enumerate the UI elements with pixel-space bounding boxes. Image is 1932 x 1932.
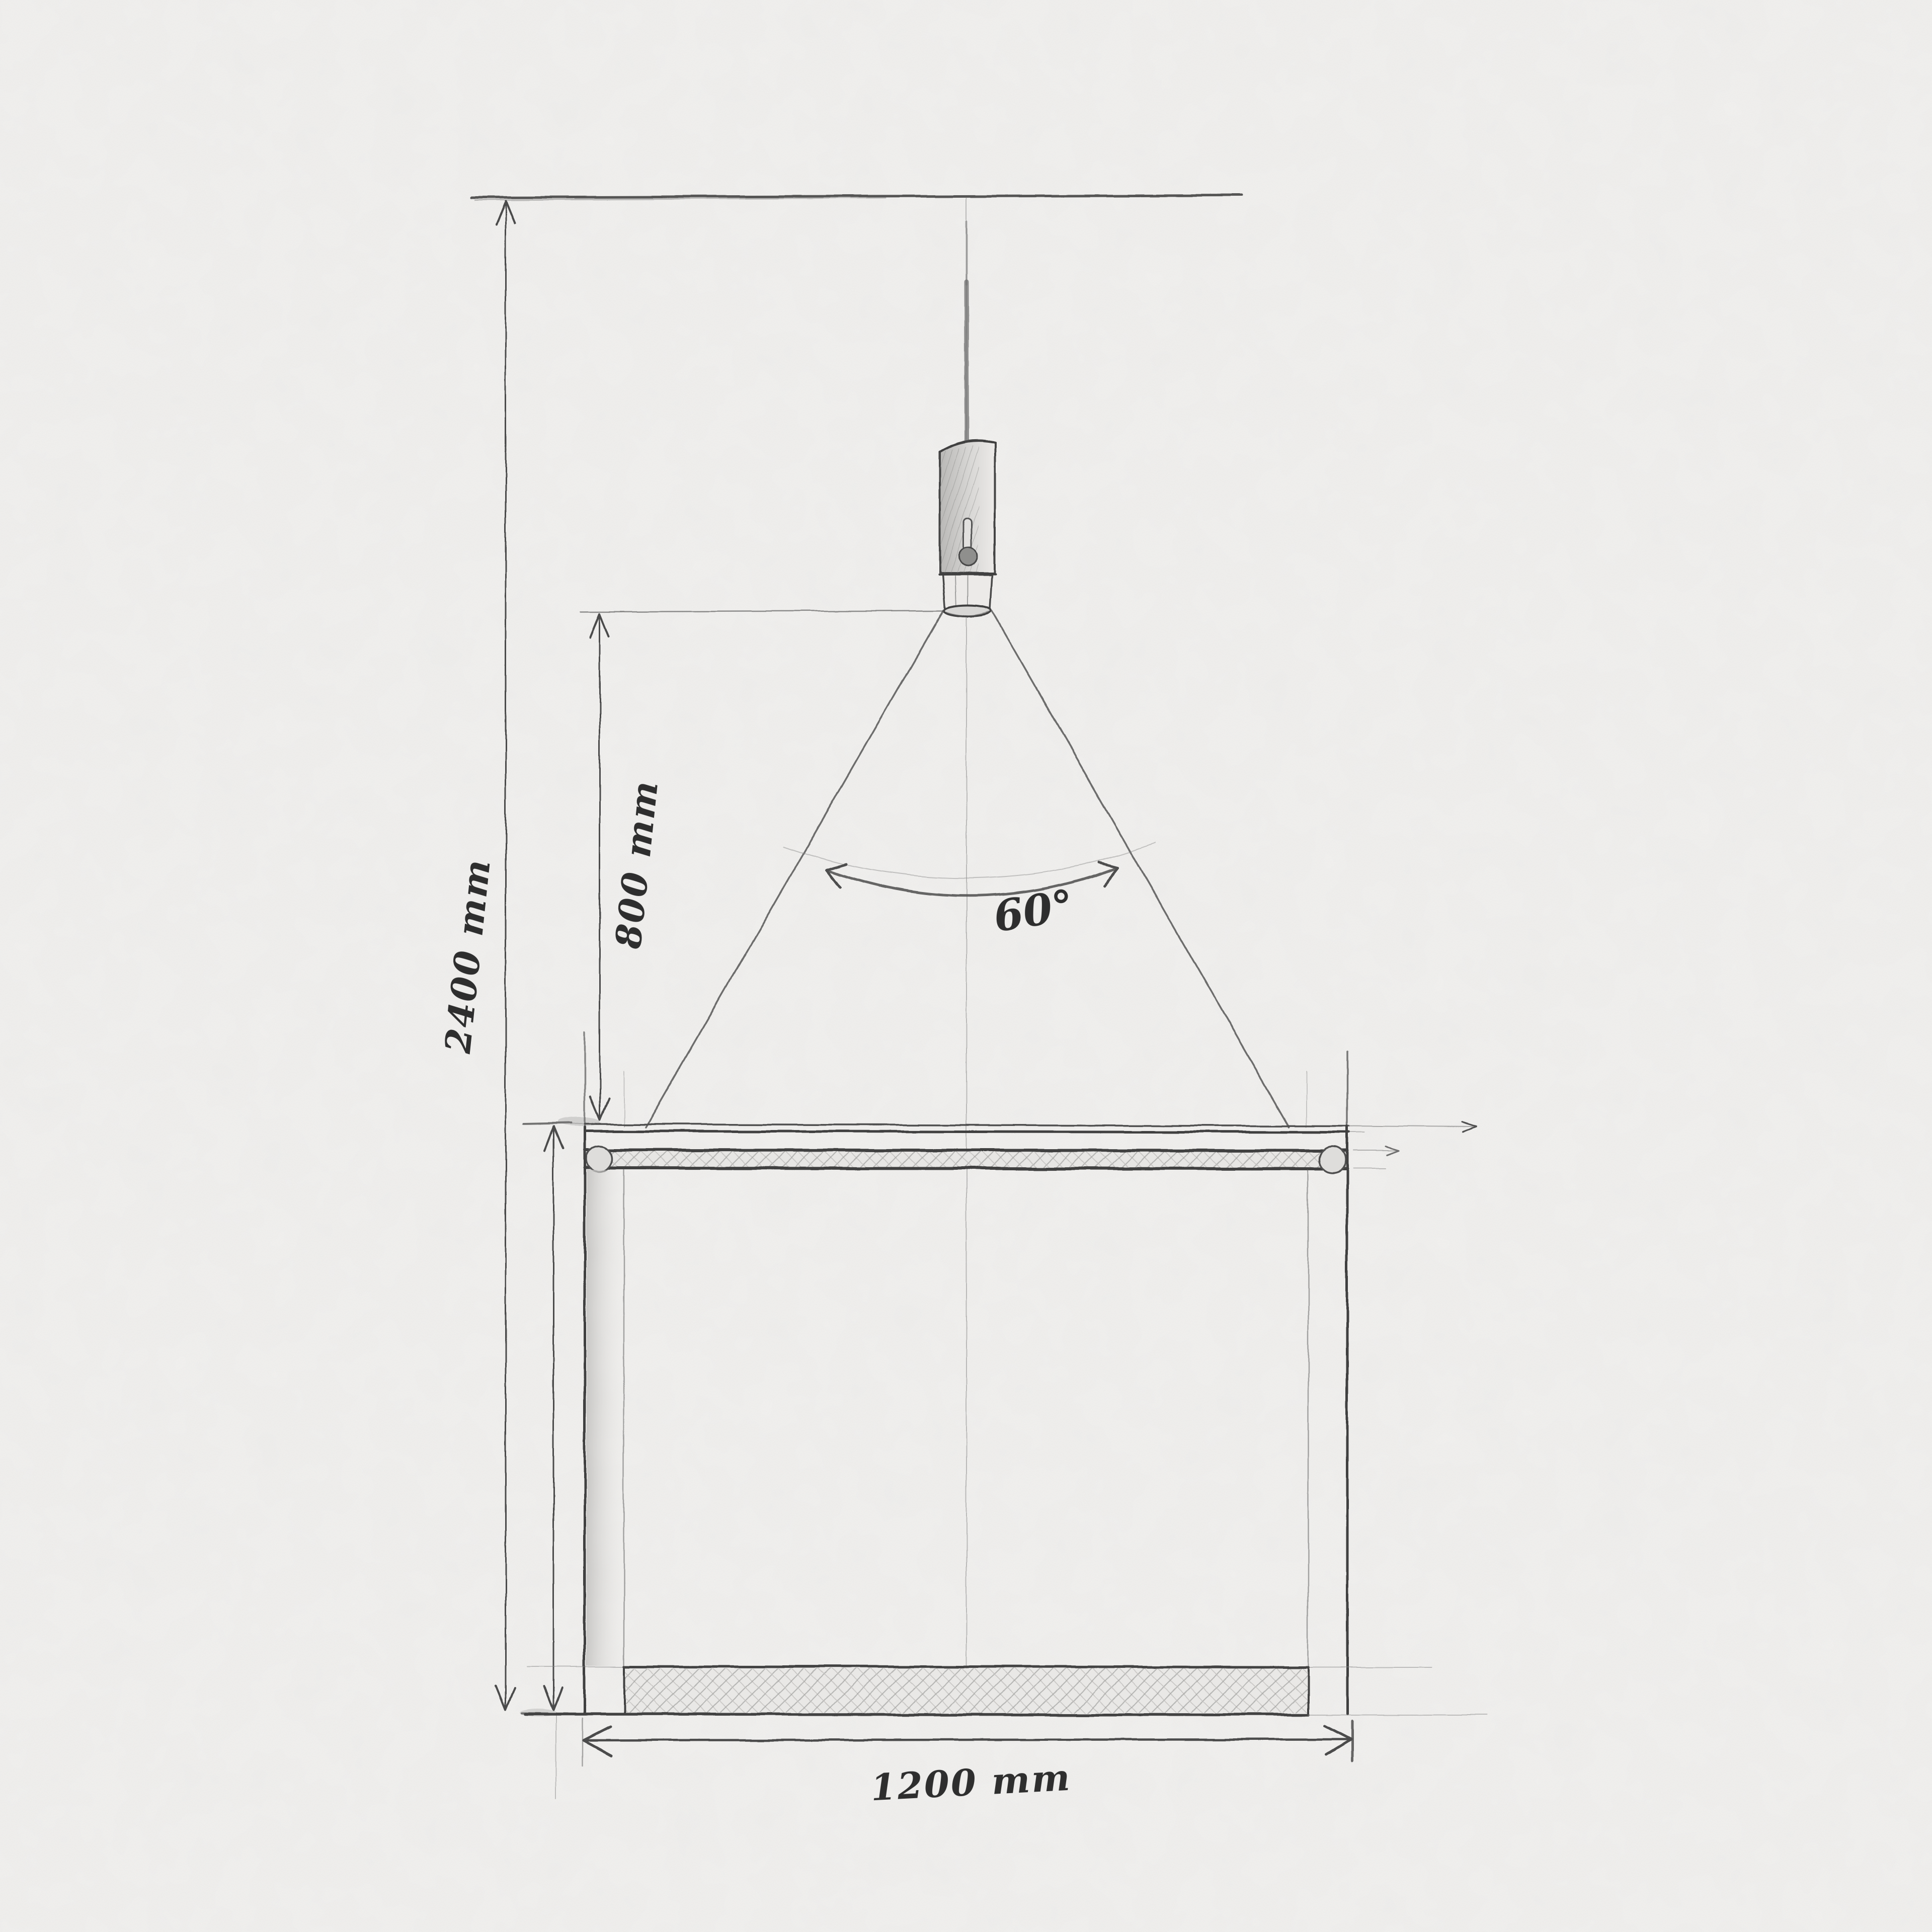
pendant-cord bbox=[967, 221, 967, 443]
lamp-socket bbox=[939, 574, 996, 616]
apron-dowel-right bbox=[1320, 1147, 1346, 1173]
sketch-canvas: 2400 mm 800 mm 60° 1200 mm bbox=[0, 0, 1932, 1932]
table-shelf bbox=[527, 1666, 1431, 1714]
apron-dowel-left bbox=[586, 1146, 612, 1172]
table-leg-left bbox=[585, 1127, 624, 1714]
pendant-lamp bbox=[939, 441, 996, 616]
sketch-page: 2400 mm 800 mm 60° 1200 mm bbox=[0, 0, 1932, 1932]
table-apron bbox=[585, 1146, 1398, 1173]
floor-line bbox=[526, 1714, 1487, 1715]
